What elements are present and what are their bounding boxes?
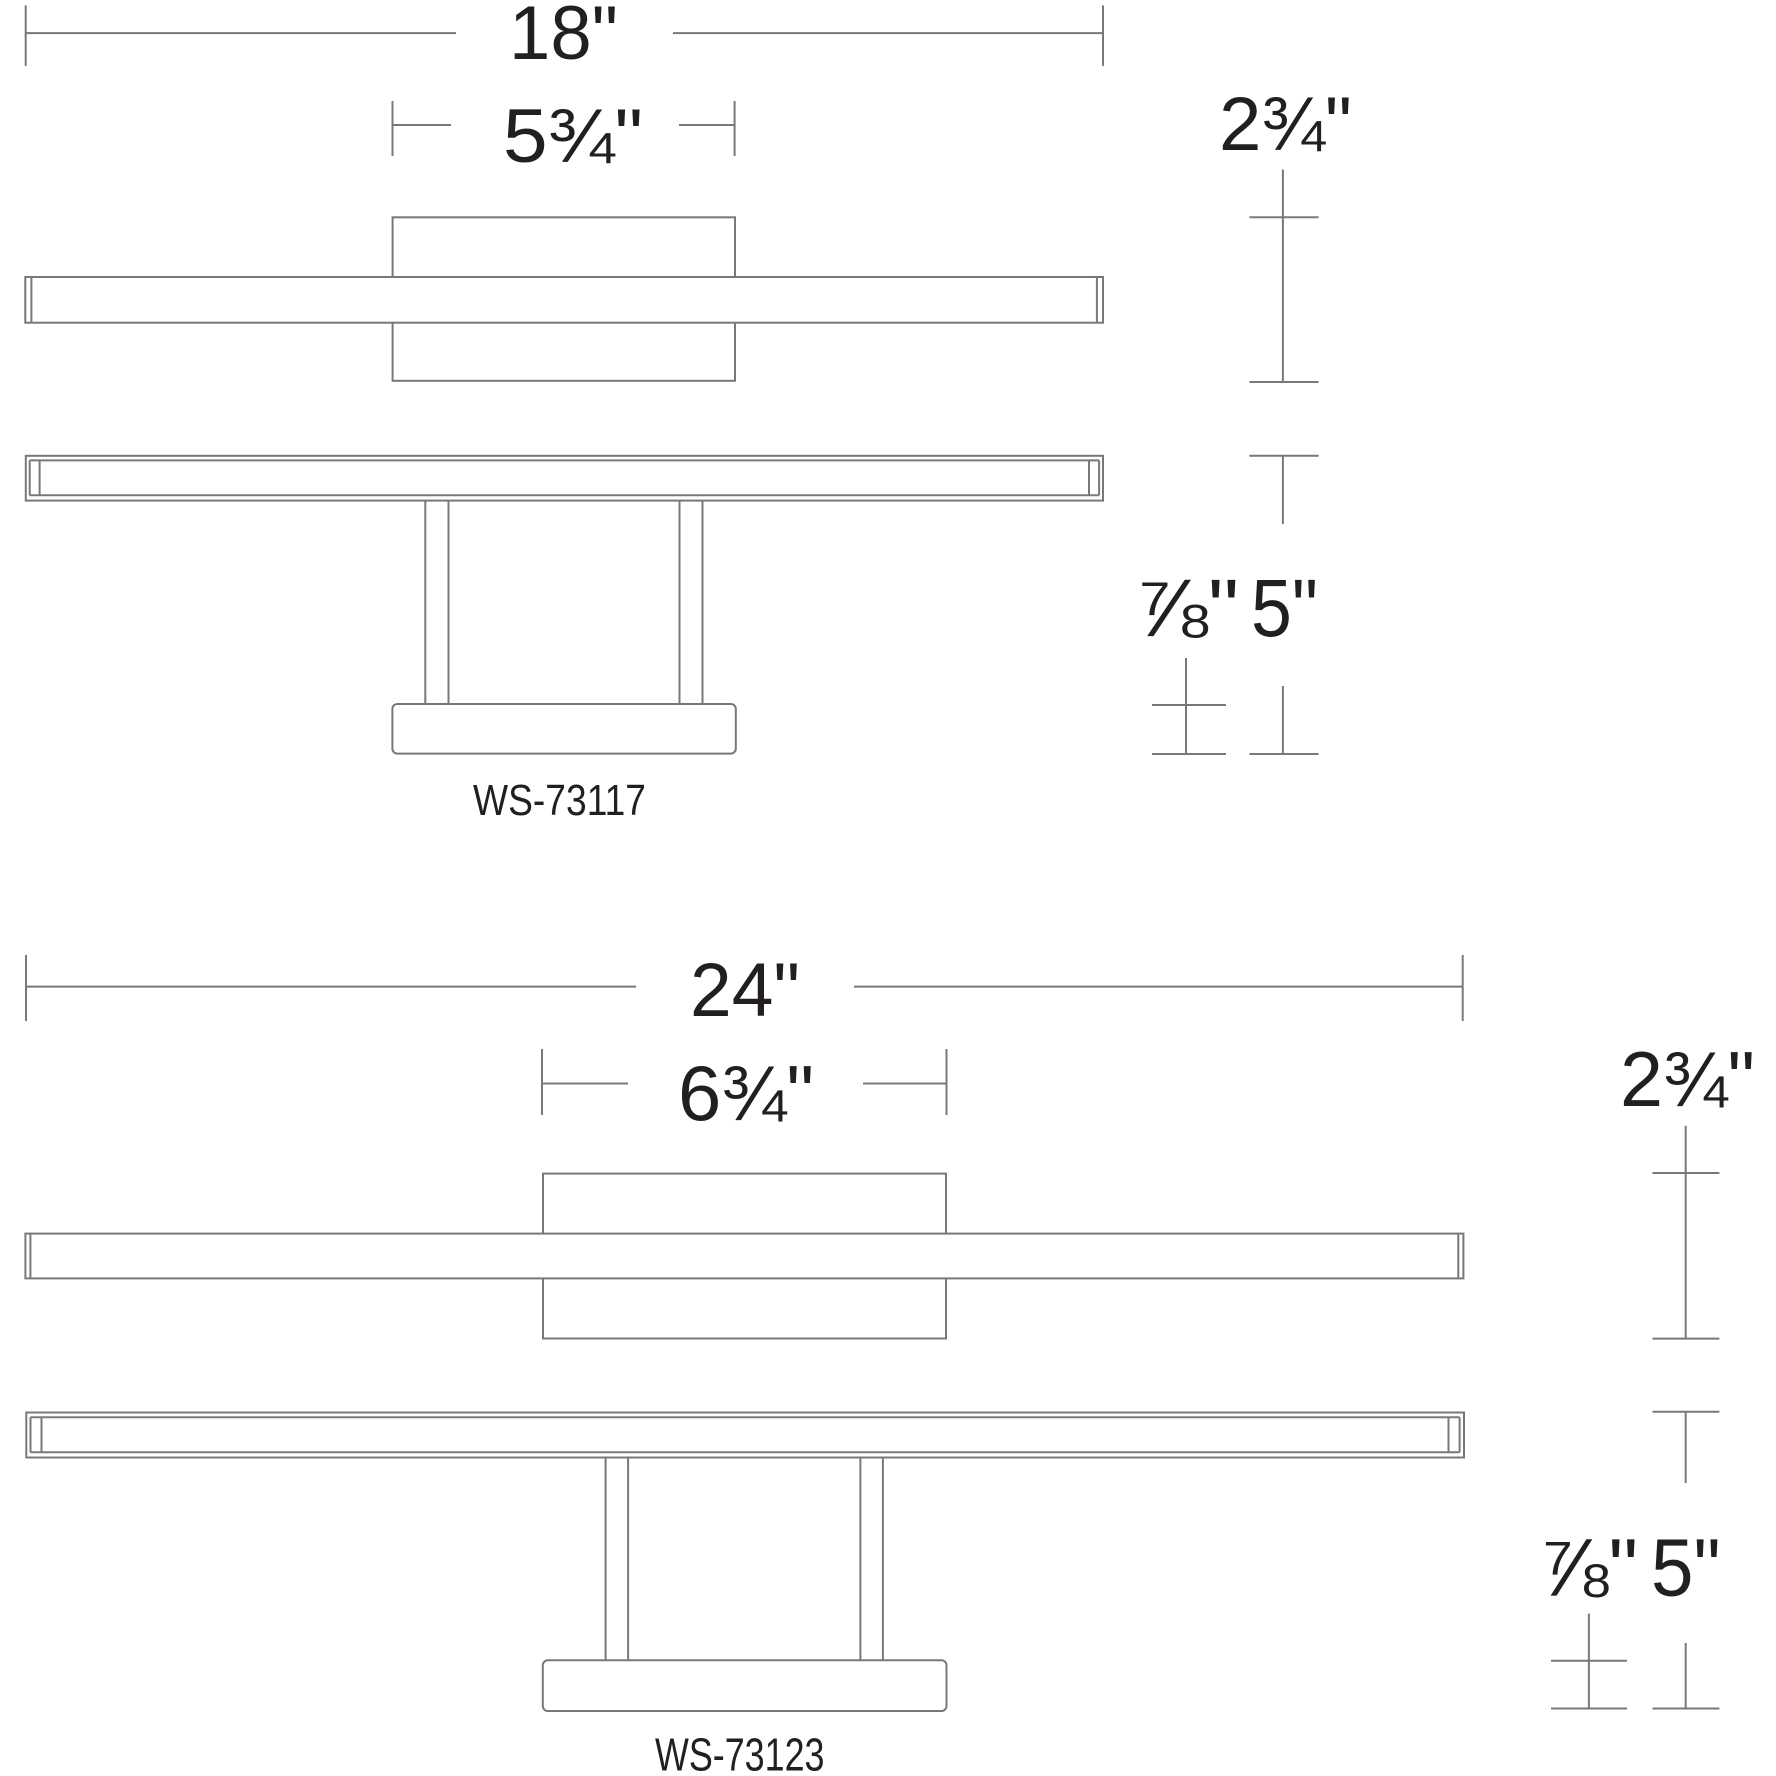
svg-text:2¾": 2¾" [1219, 82, 1352, 167]
svg-text:WS-73123: WS-73123 [655, 1729, 825, 1776]
svg-text:2¾": 2¾" [1620, 1035, 1755, 1123]
svg-text:5": 5" [1651, 1523, 1721, 1614]
svg-text:18": 18" [509, 0, 618, 76]
svg-text:WS-73117: WS-73117 [473, 776, 646, 825]
svg-text:5": 5" [1251, 563, 1318, 654]
svg-text:⅞": ⅞" [1135, 563, 1239, 654]
svg-text:24": 24" [690, 948, 800, 1033]
svg-text:5¾": 5¾" [503, 94, 643, 179]
svg-text:⅞": ⅞" [1539, 1523, 1638, 1614]
svg-text:6¾": 6¾" [678, 1049, 814, 1137]
